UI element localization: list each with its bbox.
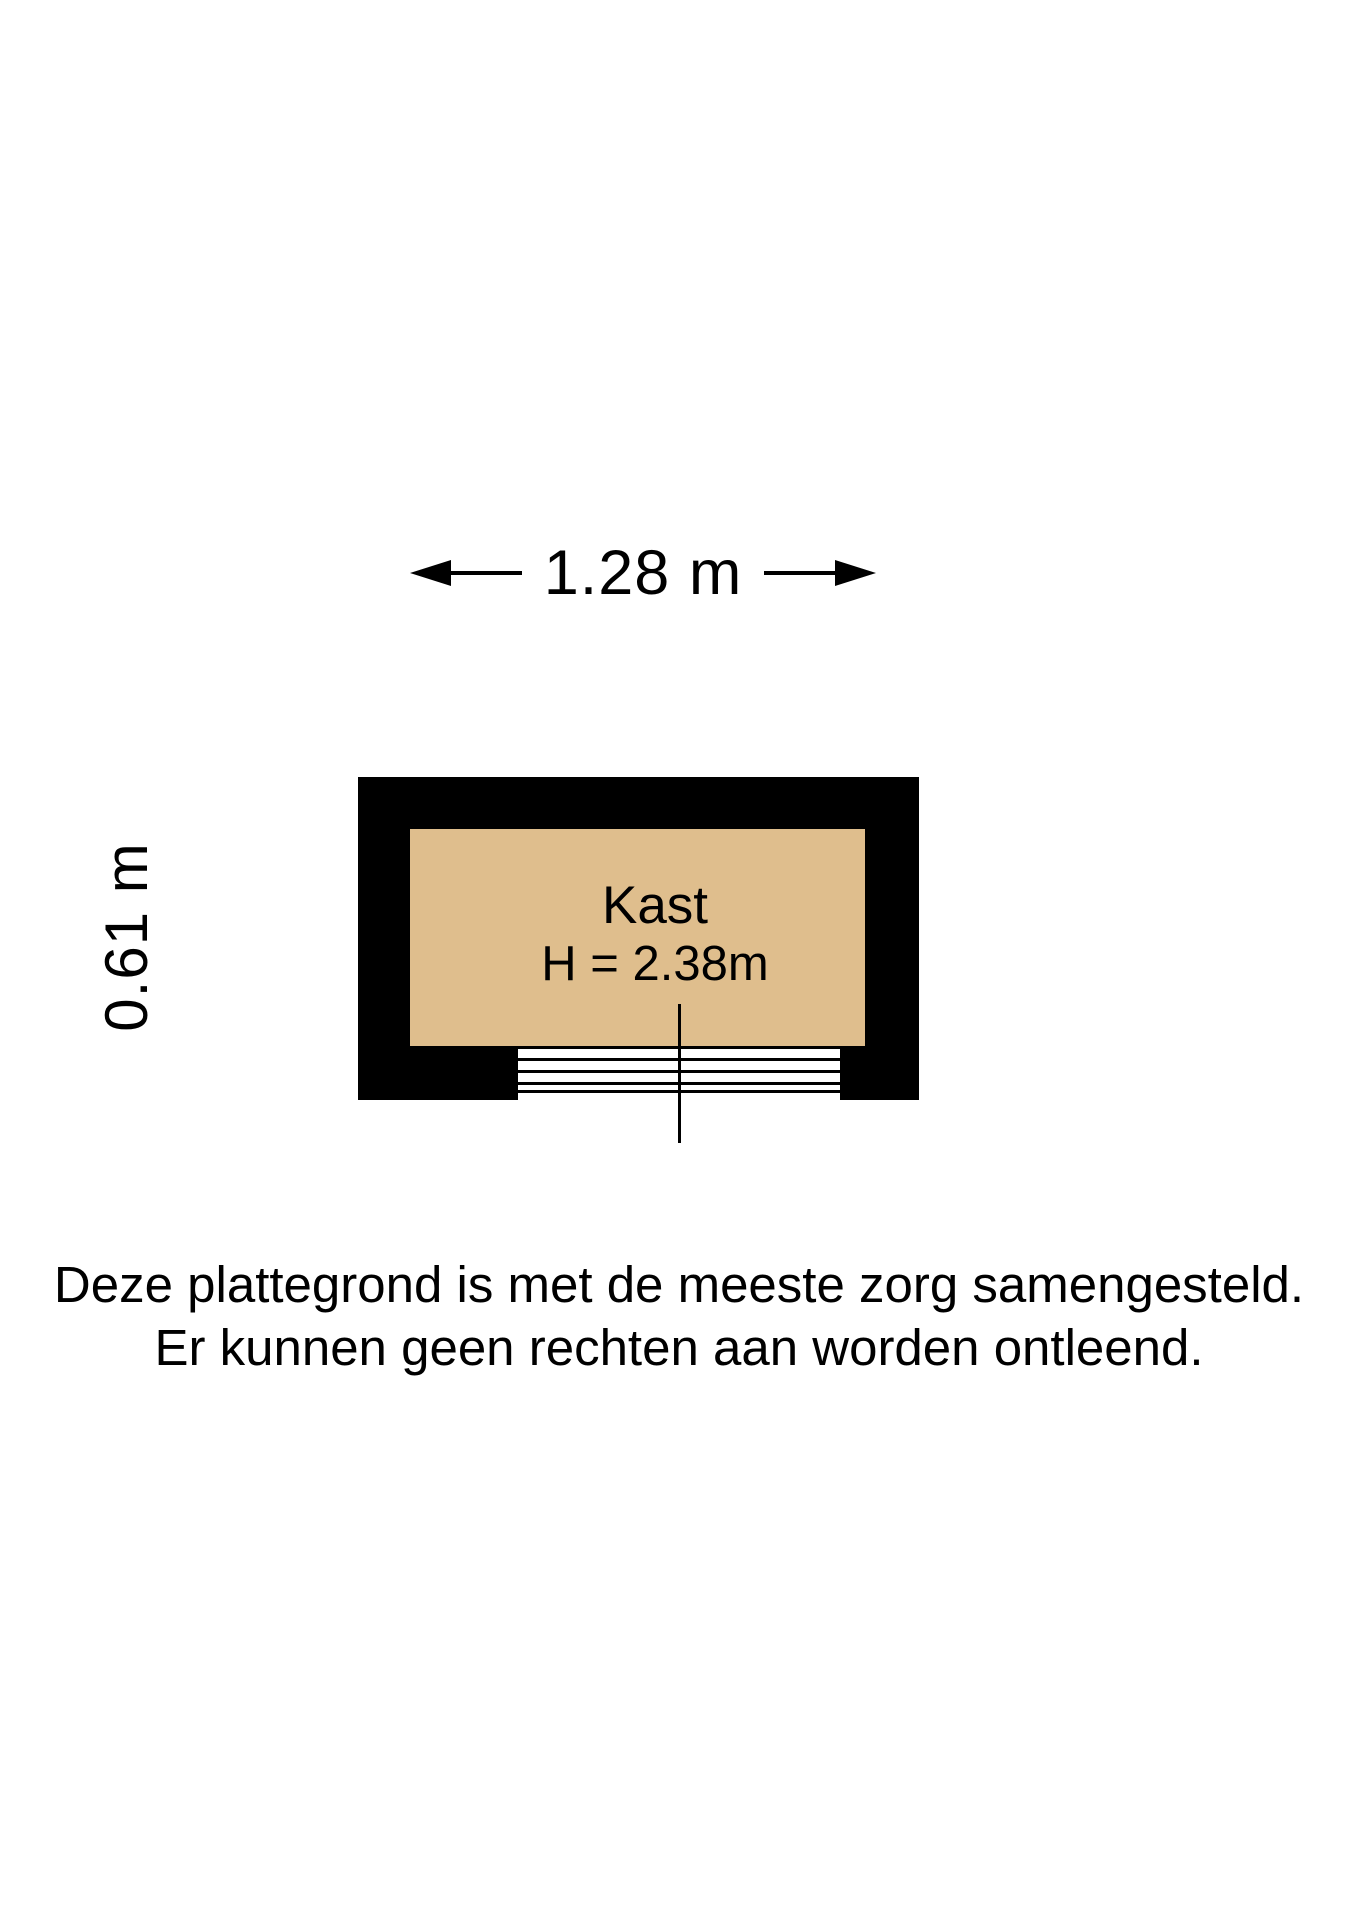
room-label: Kast H = 2.38m: [420, 876, 890, 992]
width-dimension-label: 1.28 m: [522, 541, 765, 605]
arrow-right-icon: [835, 560, 876, 586]
dimension-line-right: [764, 571, 835, 575]
room-height-label: H = 2.38m: [420, 936, 890, 992]
disclaimer-line-2: Er kunnen geen rechten aan worden ontlee…: [0, 1316, 1358, 1379]
room-name: Kast: [420, 876, 890, 936]
dimension-line-left: [451, 571, 522, 575]
height-leader-line: [678, 1004, 681, 1143]
arrow-left-icon: [410, 560, 451, 586]
disclaimer-line-1: Deze plattegrond is met de meeste zorg s…: [0, 1253, 1358, 1316]
floorplan-canvas: 1.28 m 0.61 m Kast H = 2.38m Deze platte…: [0, 0, 1358, 1920]
width-dimension: 1.28 m: [410, 541, 876, 605]
depth-dimension-label: 0.61 m: [96, 786, 158, 1088]
disclaimer-text: Deze plattegrond is met de meeste zorg s…: [0, 1253, 1358, 1379]
